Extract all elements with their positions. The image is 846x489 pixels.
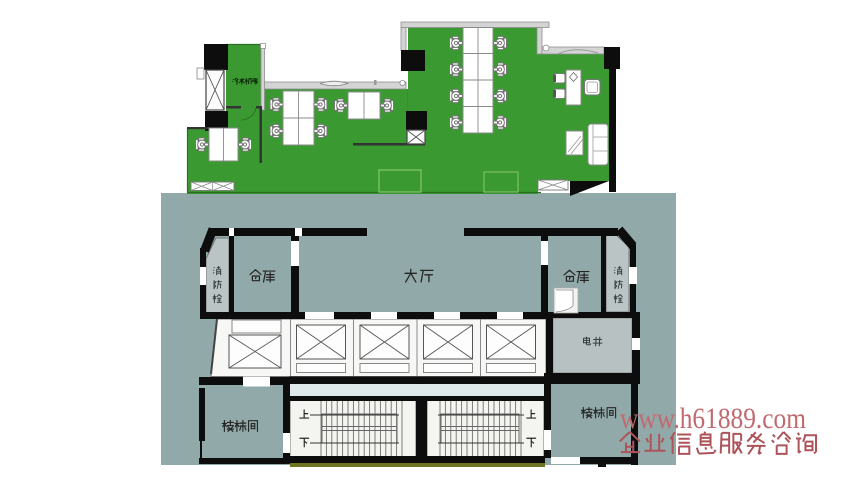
svg-text:www.h61889.com: www.h61889.com (620, 402, 806, 435)
